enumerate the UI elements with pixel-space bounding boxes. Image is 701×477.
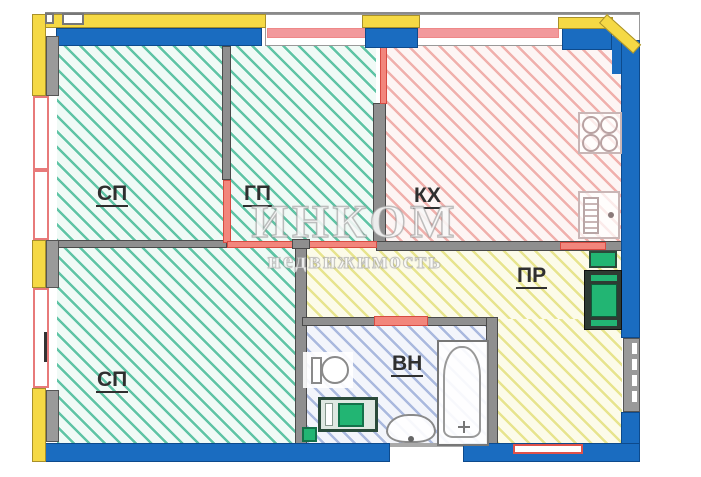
room-bedroom-top bbox=[57, 46, 223, 242]
washer-drum bbox=[338, 403, 364, 427]
wall-hall-vertical bbox=[295, 248, 307, 447]
label-gp: ГП bbox=[243, 182, 272, 206]
left-pier-3 bbox=[46, 390, 59, 442]
label-kitchen: КХ bbox=[413, 184, 442, 208]
washer-slat bbox=[325, 403, 333, 426]
left-facade-yellow-1 bbox=[32, 14, 46, 96]
room-gp bbox=[230, 46, 376, 243]
corner-notch bbox=[45, 13, 54, 24]
left-facade-yellow-3 bbox=[32, 388, 46, 462]
room-hallway-right bbox=[497, 319, 622, 444]
vent-box bbox=[62, 13, 84, 25]
left-facade-yellow-2 bbox=[32, 240, 46, 288]
left-pier-1 bbox=[46, 36, 59, 96]
hallway-shelf-icon bbox=[589, 251, 617, 268]
left-window-2 bbox=[33, 170, 49, 240]
right-wall-blue-top bbox=[621, 40, 640, 338]
stove-burner-icon bbox=[582, 116, 600, 134]
stove-burner-icon bbox=[600, 134, 618, 152]
bathtub-drain-cross bbox=[463, 421, 465, 433]
bathroom-doorway-red bbox=[374, 316, 428, 326]
top-pier2-blue bbox=[562, 28, 612, 50]
left-pier-2 bbox=[46, 240, 59, 288]
stove-burner-icon bbox=[582, 134, 600, 152]
top-pier1-yellow bbox=[362, 15, 420, 28]
small-green-box bbox=[302, 427, 317, 442]
kitchen-sink-icon bbox=[578, 191, 620, 239]
wall-sp2-top bbox=[57, 240, 227, 248]
room-hallway-upper bbox=[306, 248, 622, 319]
sink-basin bbox=[583, 197, 599, 234]
wall-junction-block bbox=[292, 239, 310, 249]
room-bedroom-bottom bbox=[57, 248, 297, 444]
bathroom-sink-drain bbox=[408, 436, 414, 442]
cabinet-slat bbox=[591, 275, 617, 281]
washing-machine-icon bbox=[318, 397, 378, 432]
label-bedroom-bottom: СП bbox=[96, 368, 128, 392]
entrance-door-leaf bbox=[632, 343, 637, 407]
entry-doorway-red bbox=[513, 444, 583, 454]
bathtub-basin bbox=[443, 346, 481, 438]
window-sash-mark bbox=[44, 332, 47, 362]
faucet-dot bbox=[608, 212, 614, 218]
cabinet-door bbox=[591, 284, 617, 317]
wall-sp1-gp-red bbox=[223, 180, 231, 243]
hallway-cabinet-icon bbox=[584, 270, 622, 330]
floor-plan: СП ГП КХ СП ВН ПР ИНКОМ недвижимость bbox=[0, 0, 701, 477]
kitchen-doorway-red bbox=[560, 242, 606, 250]
bathtub-icon bbox=[437, 340, 489, 446]
label-bedroom-top: СП bbox=[96, 182, 128, 206]
wall-gp-kh bbox=[373, 103, 386, 243]
cabinet-slat bbox=[591, 320, 617, 326]
stove-burner-icon bbox=[600, 116, 618, 134]
left-window-1 bbox=[33, 96, 49, 170]
bottom-wall-blue-left bbox=[45, 443, 390, 462]
top-pier1-blue bbox=[365, 28, 418, 48]
stove-icon bbox=[578, 112, 622, 154]
wall-sp1-gp bbox=[222, 46, 231, 180]
toilet-bowl-icon bbox=[321, 356, 349, 384]
label-bathroom: ВН bbox=[391, 352, 423, 376]
wall-gp-kh-red bbox=[380, 46, 387, 104]
label-hallway: ПР bbox=[516, 264, 547, 288]
top-wall-blue-left bbox=[56, 28, 262, 46]
